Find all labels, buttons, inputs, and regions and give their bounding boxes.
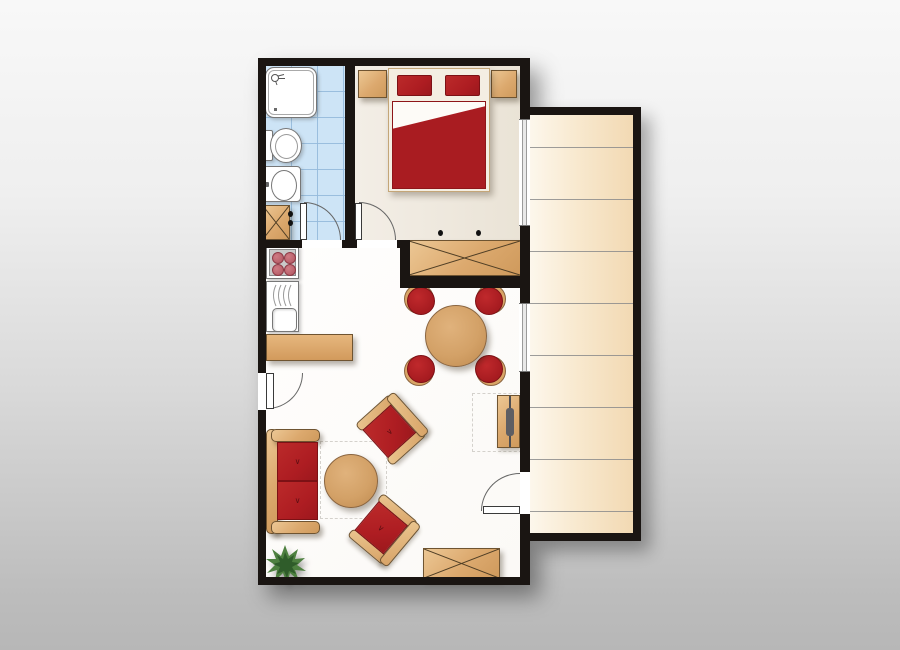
wardrobe [423, 548, 500, 579]
terrace-wall-top [530, 107, 641, 115]
wall-between-doors [342, 240, 357, 248]
deck-plank-line [530, 459, 633, 460]
toilet-bowl [270, 128, 302, 163]
kitchen-counter [266, 334, 353, 361]
deck-plank-line [530, 303, 633, 304]
stool-seat [407, 287, 435, 315]
terrace-wall-bottom [530, 533, 641, 541]
shower-head-icon [269, 71, 289, 89]
nightstand-right [491, 70, 517, 98]
bathroom-cabinet [262, 205, 290, 240]
toilet-bowl-inner [275, 134, 298, 159]
washbasin [262, 166, 301, 202]
bedroom-door-leaf [355, 203, 362, 240]
wall-top [258, 58, 530, 66]
shower-drain [274, 108, 277, 111]
terrace-door-leaf [483, 506, 520, 514]
duvet [392, 101, 486, 189]
stool-seat [475, 287, 503, 315]
terrace-deck [530, 115, 633, 533]
living-room-window [519, 303, 530, 372]
wall-bath-bedroom [345, 58, 355, 248]
dining-stool [404, 284, 438, 318]
cabinet-knob [288, 220, 293, 226]
bathroom-door-leaf [300, 203, 307, 240]
bedroom-window [519, 119, 530, 226]
bathroom-door-opening [302, 240, 342, 248]
stool-seat [475, 355, 503, 383]
sink-basin [272, 308, 297, 332]
cabinet-knob [288, 211, 293, 217]
stove [266, 246, 299, 279]
wall-niche-bottom [410, 276, 530, 288]
tv-sideboard [497, 395, 520, 448]
shower [265, 67, 317, 118]
coffee-table [324, 454, 378, 508]
burner [284, 252, 296, 264]
built-in-closet [408, 240, 521, 276]
bedroom-door-opening [357, 240, 397, 248]
sofa: ∨ ∨ [266, 429, 322, 534]
deck-plank-line [530, 251, 633, 252]
washbasin-bowl [271, 170, 297, 201]
deck-plank-line [530, 147, 633, 148]
sofa-armrest [271, 521, 320, 534]
burner [284, 264, 296, 276]
wall-bottom [258, 577, 530, 585]
dining-table [425, 305, 487, 367]
terrace-door-opening [520, 472, 530, 514]
wall-bath-bottom [266, 240, 302, 248]
wall-bedroom-bottom [397, 240, 410, 248]
double-bed [388, 68, 490, 192]
closet-pivot-dot [476, 230, 481, 236]
entrance-opening [258, 373, 266, 410]
nightstand-left [358, 70, 387, 98]
wall-left [258, 58, 266, 585]
burner [272, 252, 284, 264]
burner [272, 264, 284, 276]
entrance-door-leaf [266, 373, 274, 409]
pillow-right [445, 75, 480, 96]
floor-plan-canvas: ∨ ∨ ∨ ∨ [0, 0, 900, 650]
tv-screen [506, 408, 514, 436]
stool-seat [407, 355, 435, 383]
sofa-cushion: ∨ [277, 481, 318, 520]
deck-plank-line [530, 511, 633, 512]
toilet [261, 128, 303, 164]
duvet-fold [393, 102, 485, 188]
sofa-cushion: ∨ [277, 442, 318, 481]
closet-pivot-dot [438, 230, 443, 236]
terrace-wall-right [633, 107, 641, 541]
deck-plank-line [530, 199, 633, 200]
wall-niche-left [400, 248, 410, 288]
deck-plank-line [530, 355, 633, 356]
sofa-armrest [271, 429, 320, 442]
kitchen-sink [266, 281, 299, 332]
deck-plank-line [530, 407, 633, 408]
stove-panel [269, 249, 296, 276]
pillow-left [397, 75, 432, 96]
drainer-lines [267, 283, 298, 308]
